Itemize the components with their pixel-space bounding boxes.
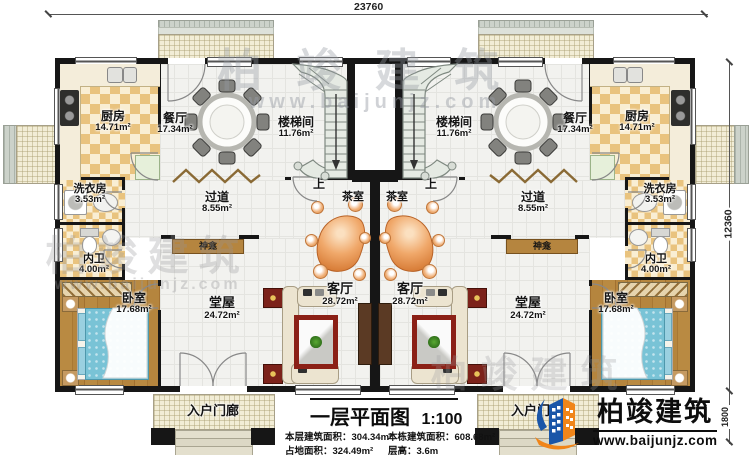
porch-label: 入户门廊 xyxy=(163,404,263,419)
brand-text: 柏竣建筑 www.baijunjz.com xyxy=(593,390,717,448)
unit-left: 神龛 xyxy=(55,58,375,392)
floor-plan-canvas: 23760 12360 1800 xyxy=(0,0,750,455)
stairwell-label: 楼梯间11.76m² xyxy=(421,116,487,140)
unit-right: 神龛 xyxy=(375,58,695,392)
bedroom-label: 卧室17.68m² xyxy=(105,292,163,316)
brand-website: www.baijunjz.com xyxy=(593,430,717,448)
living-label: 客厅28.72m² xyxy=(309,282,371,307)
stairs-up-label: 上 xyxy=(307,178,331,191)
dining-label: 餐厅17.34m² xyxy=(143,112,207,136)
zigzag-screen xyxy=(173,170,260,182)
terrace-side-right xyxy=(695,125,747,182)
porch-left: 入户门廊 xyxy=(153,392,273,455)
stat-building-area: 本栋建筑面积：608.68m² xyxy=(388,429,495,443)
living-label: 客厅28.72m² xyxy=(379,282,441,307)
terrace-top-right xyxy=(478,20,592,58)
stairs-up-label: 上 xyxy=(419,178,443,191)
bed-blanket xyxy=(603,308,647,378)
title-rule xyxy=(310,398,458,400)
terrace-edge xyxy=(734,125,749,184)
stat-footprint-area: 占地面积：324.49m² xyxy=(285,443,373,455)
hallway-label: 过道8.55m² xyxy=(185,191,249,215)
plan-title-row: 一层平面图 1:100 xyxy=(310,401,480,430)
hallway-label: 过道8.55m² xyxy=(501,191,565,215)
stairwell-label: 楼梯间11.76m² xyxy=(263,116,329,140)
laundry-label: 洗衣房3.53m² xyxy=(61,183,119,206)
top-dimension-line xyxy=(48,14,708,15)
tea-room-label: 茶室 xyxy=(335,191,371,203)
stat-floor-height: 层高：3.6m xyxy=(388,443,438,455)
hall-label: 堂屋24.72m² xyxy=(189,296,255,321)
right-porch-dimension-label: 1800 xyxy=(720,405,730,429)
laundry-label: 洗衣房3.53m² xyxy=(631,183,689,206)
dining-label: 餐厅17.34m² xyxy=(543,112,607,136)
stat-floor-area: 本层建筑面积：304.34m² xyxy=(285,429,392,443)
brand-logo: 柏竣建筑 www.baijunjz.com xyxy=(527,388,717,452)
step xyxy=(175,446,253,455)
terrace-side-left xyxy=(3,125,55,182)
porch-column xyxy=(251,428,275,445)
bed-blanket xyxy=(103,308,147,378)
brand-name: 柏竣建筑 xyxy=(593,390,717,429)
top-dimension-label: 23760 xyxy=(352,1,385,13)
brand-logo-icon xyxy=(527,390,591,450)
zigzag-screen xyxy=(490,170,577,182)
kitchen-label: 厨房14.71m² xyxy=(75,110,151,134)
kitchen-label: 厨房14.71m² xyxy=(599,110,675,134)
bedroom-label: 卧室17.68m² xyxy=(587,292,645,316)
plan-scale: 1:100 xyxy=(421,411,462,428)
plan-title: 一层平面图 xyxy=(310,407,410,429)
toilet-label: 内卫4.00m² xyxy=(67,253,121,276)
right-dimension-label: 12360 xyxy=(723,207,735,240)
terrace-top-left xyxy=(158,20,272,58)
hall-label: 堂屋24.72m² xyxy=(495,296,561,321)
terrace-floor xyxy=(16,125,57,184)
title-block: 一层平面图 1:100 本层建筑面积：304.34m² 本栋建筑面积：608.6… xyxy=(285,392,480,455)
porch-column xyxy=(151,428,175,445)
toilet-label: 内卫4.00m² xyxy=(629,253,683,276)
tea-room-label: 茶室 xyxy=(379,191,415,203)
porch-steps xyxy=(175,430,251,455)
